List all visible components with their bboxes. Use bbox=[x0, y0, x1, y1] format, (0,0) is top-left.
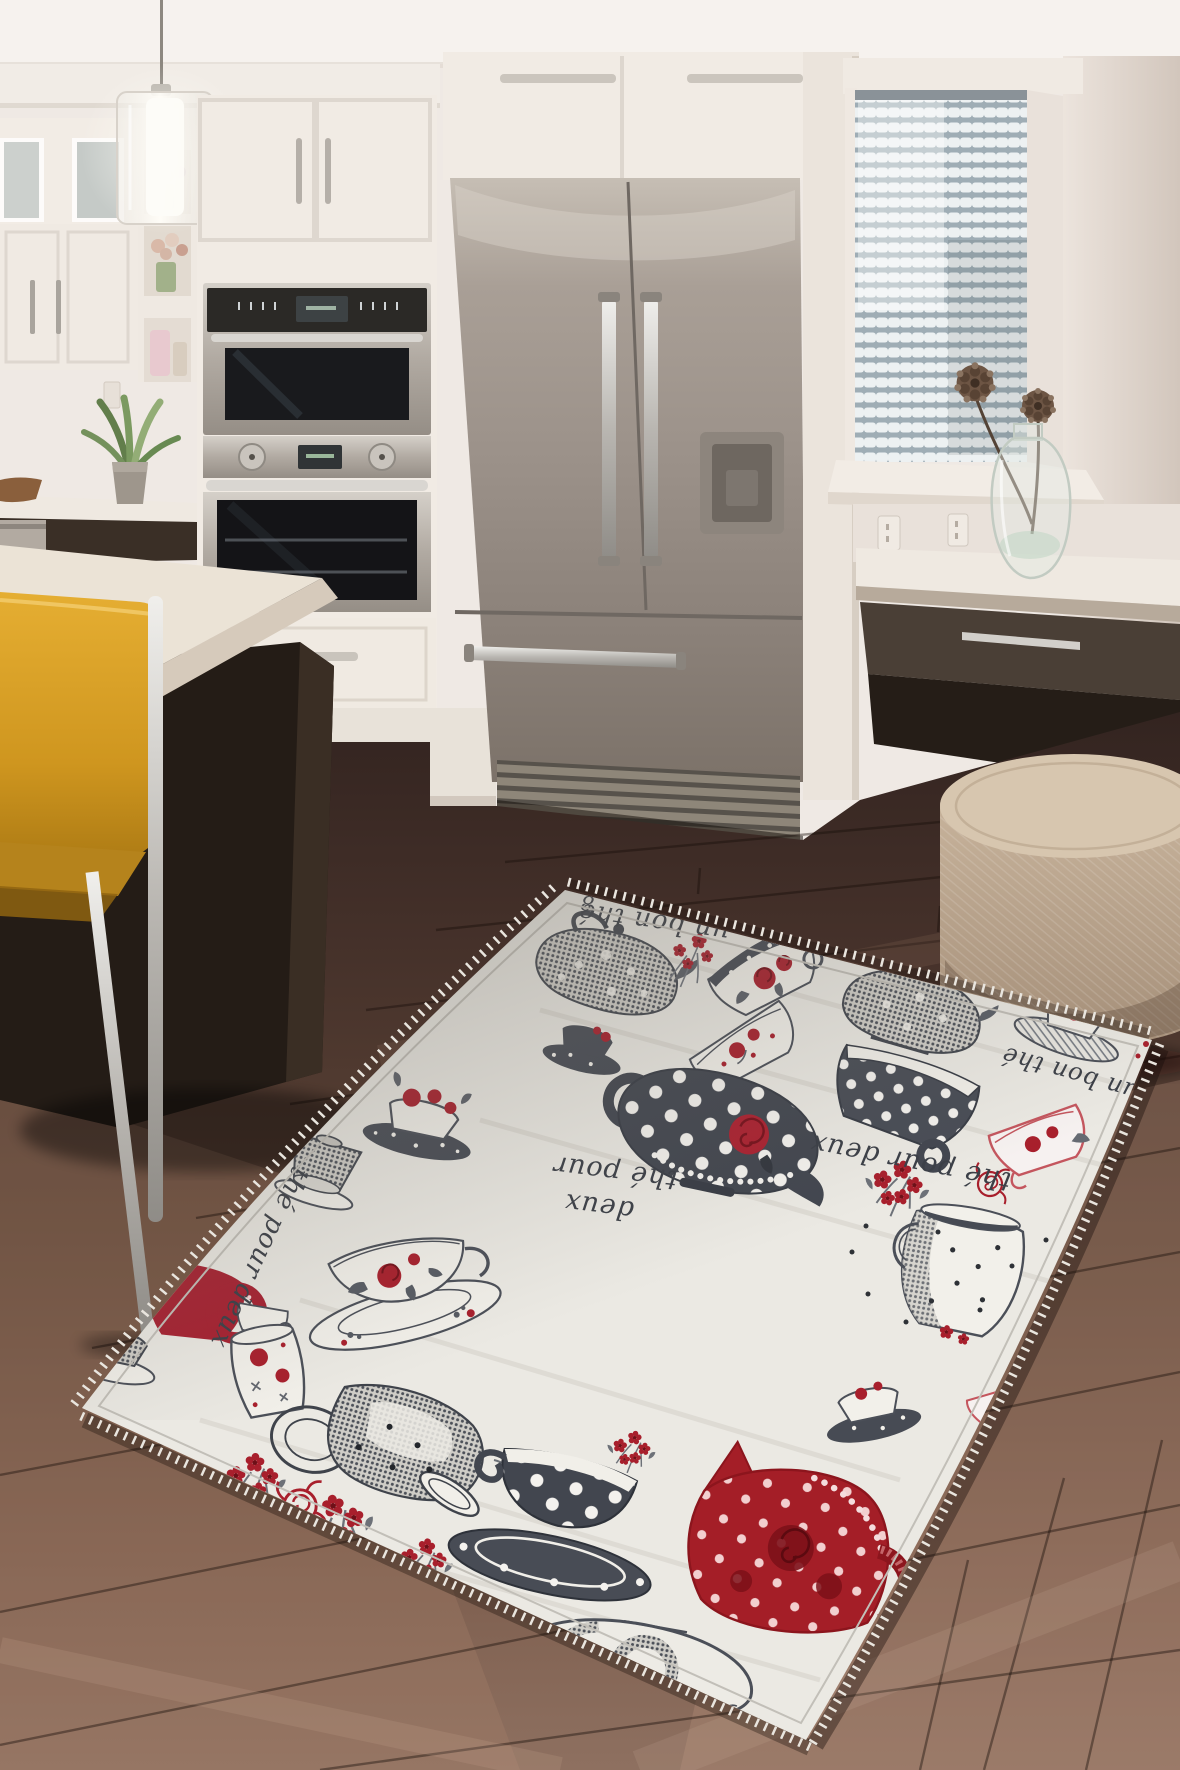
wooden-bowl bbox=[0, 478, 42, 503]
oven-handle bbox=[211, 334, 423, 342]
fridge-handle bbox=[602, 298, 616, 560]
stool-back bbox=[0, 592, 160, 877]
cabinet-handle bbox=[325, 138, 331, 204]
refrigerator bbox=[443, 52, 806, 862]
oven-window bbox=[225, 348, 409, 420]
light-switch bbox=[104, 382, 120, 408]
cabinet-handle bbox=[296, 138, 302, 204]
blind-headrail bbox=[855, 90, 1027, 100]
frosted-pane bbox=[4, 142, 39, 218]
cabinet-handle bbox=[687, 74, 803, 83]
upper-oven bbox=[203, 283, 431, 435]
stool-leg bbox=[148, 596, 163, 1222]
cabinet-handle bbox=[500, 74, 616, 83]
kitchen-photo: 8 un bon thé thé pour deux thé pour deux… bbox=[0, 0, 1180, 1770]
oven-handle bbox=[206, 480, 428, 491]
cabinet-handle bbox=[56, 280, 61, 334]
window bbox=[828, 58, 1104, 512]
cabinet-handle bbox=[30, 280, 35, 334]
fridge-handle bbox=[644, 298, 658, 560]
window-casing-top bbox=[843, 58, 1083, 94]
